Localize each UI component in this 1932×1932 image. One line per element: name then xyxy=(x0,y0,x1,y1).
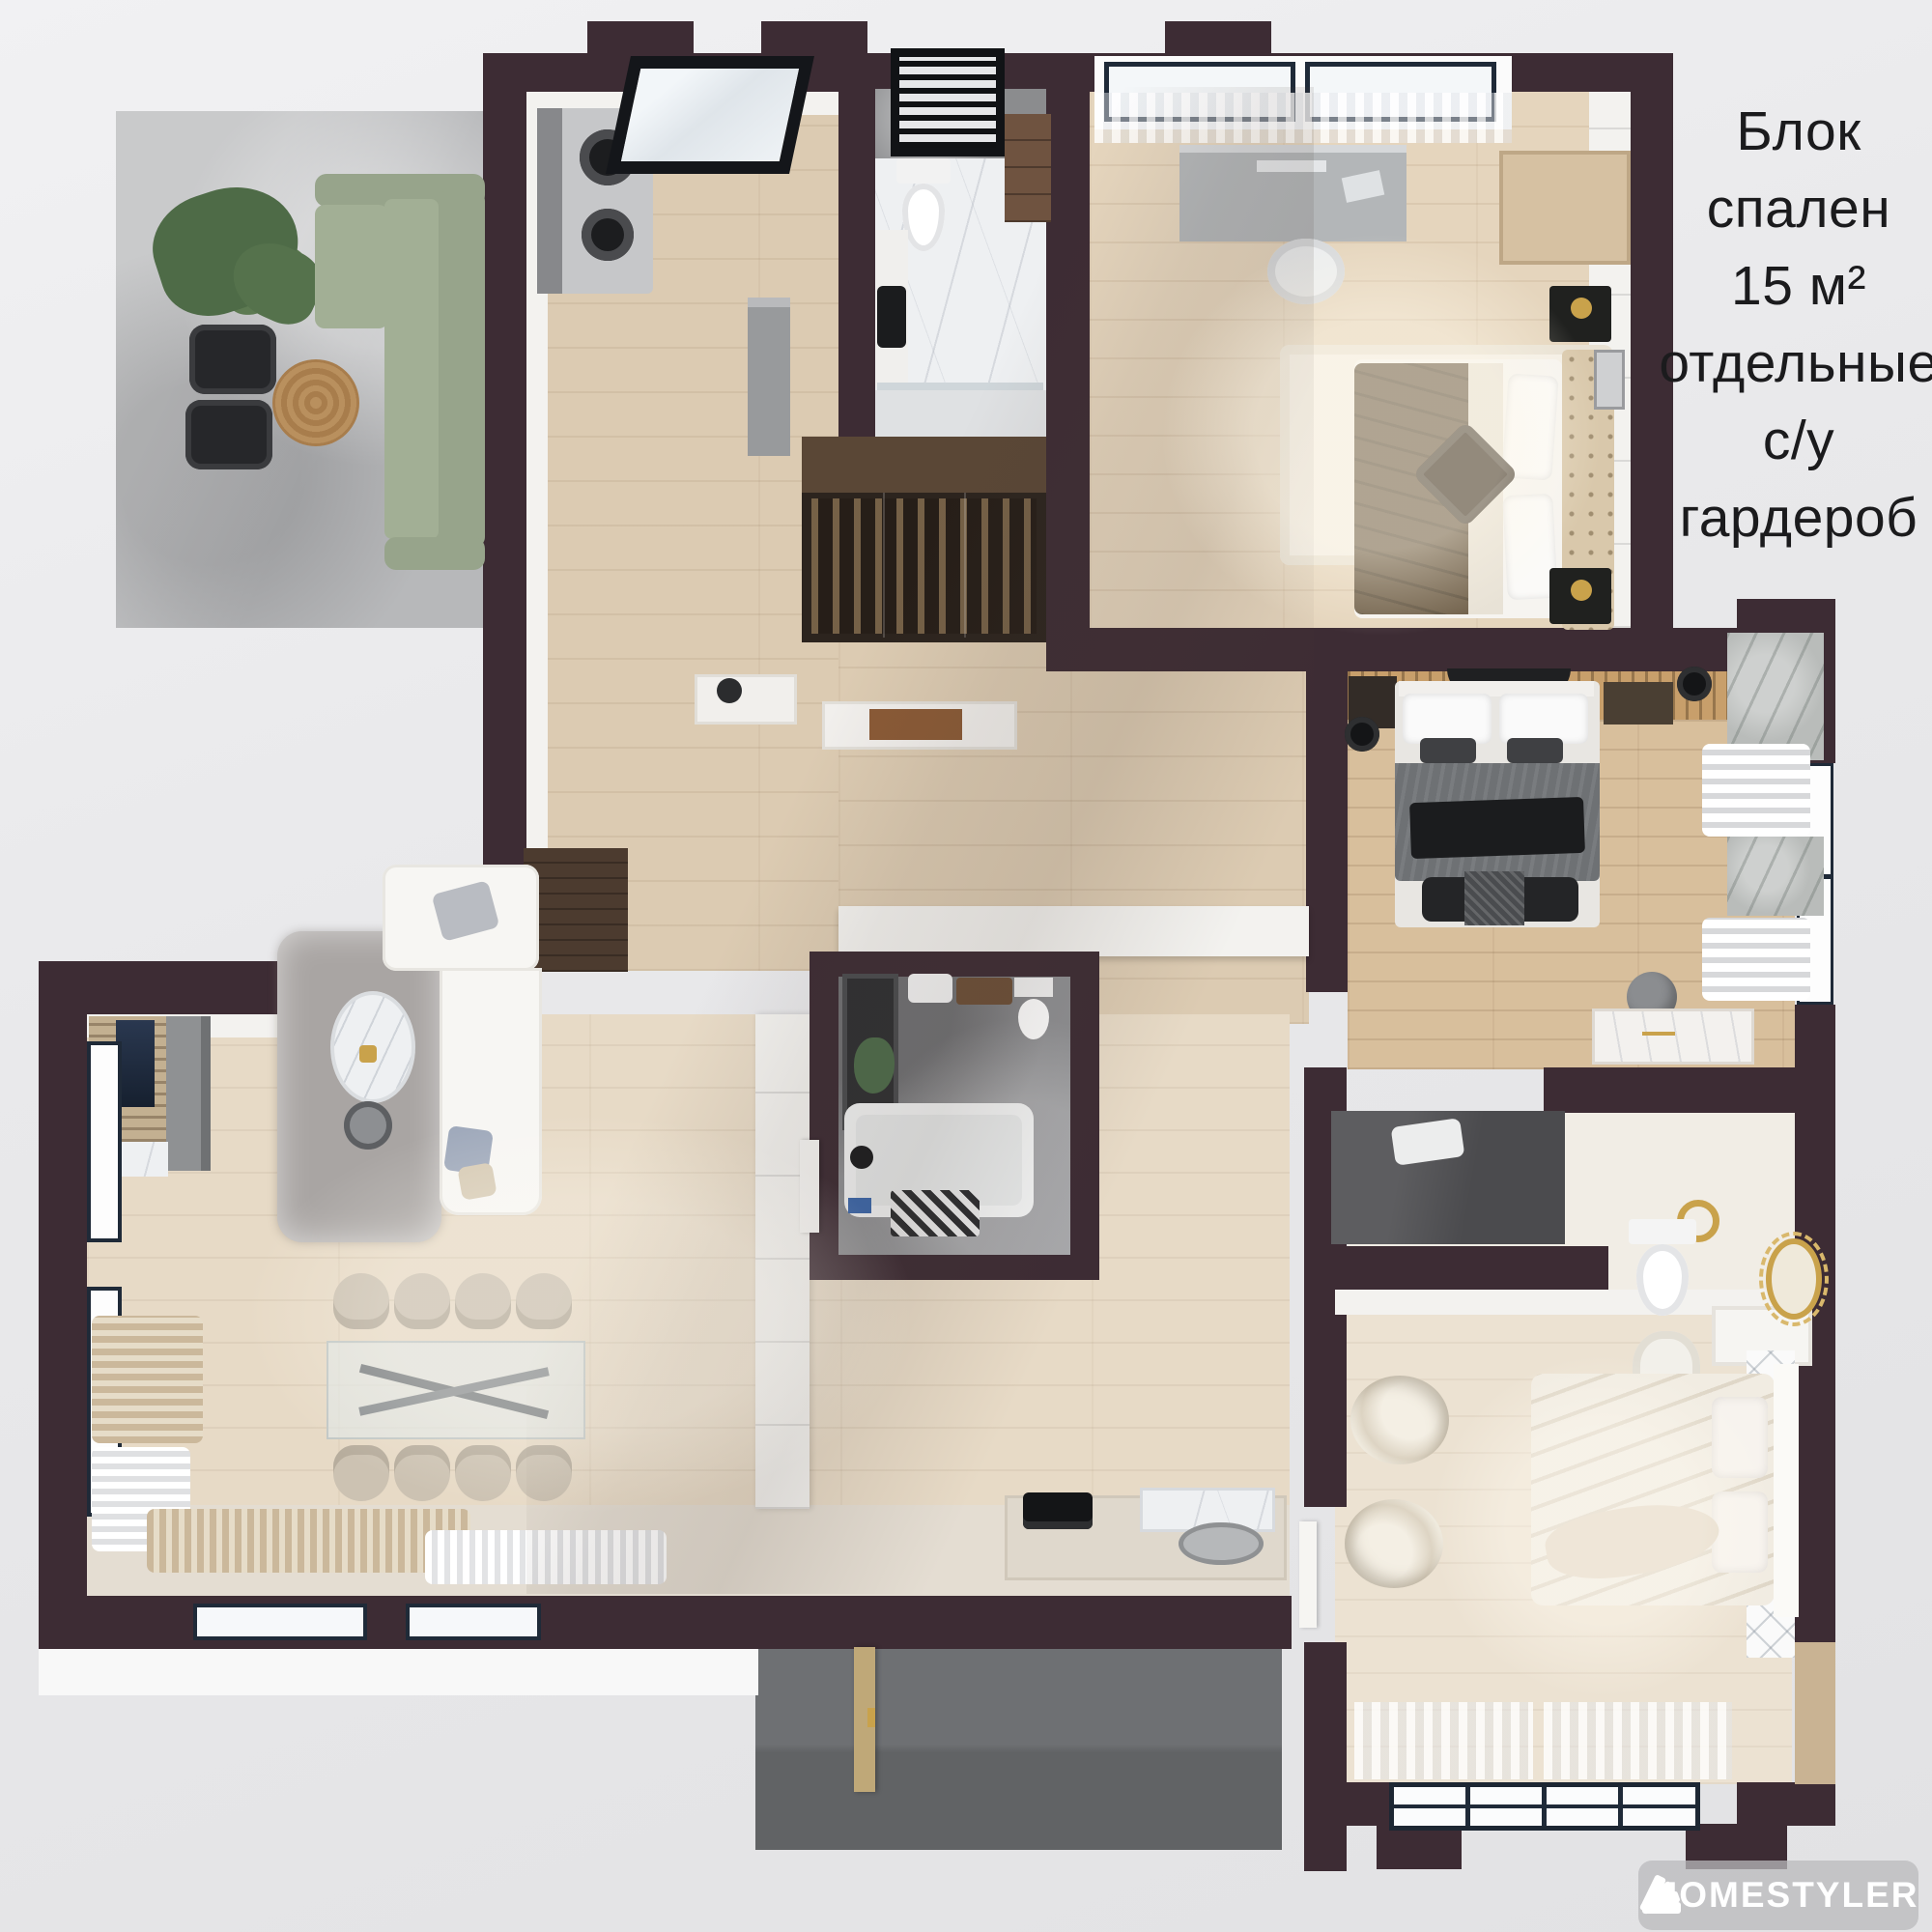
annotation-line: с/у xyxy=(1625,402,1932,479)
wall-bedroom3-top xyxy=(1335,1246,1608,1290)
shower-glass xyxy=(877,383,1043,390)
bathroom-top-slat-window xyxy=(891,48,1005,156)
terrace-armchair-2 xyxy=(185,400,272,469)
media-cabinet xyxy=(166,1016,211,1171)
wine-rack-icon xyxy=(1023,1492,1093,1529)
bedroom2-wardrobe-clothes-2 xyxy=(1702,918,1810,1001)
dining-chair xyxy=(455,1273,511,1329)
laundry-cabinet xyxy=(748,298,790,456)
annotation-line: спален xyxy=(1625,170,1932,247)
bedroom2-wardrobe-clothes-1 xyxy=(1702,744,1810,837)
bedroom2-wardrobe-stone-top xyxy=(1727,633,1824,760)
bedroom1-desk-chair xyxy=(1267,239,1345,304)
mirror-tray-icon xyxy=(1179,1522,1264,1565)
bathroom-top-sink xyxy=(877,286,906,348)
living-window-1 xyxy=(87,1041,122,1242)
annotation-line: отдельные xyxy=(1625,325,1932,402)
shelf-plant-icon xyxy=(854,1037,895,1094)
bathcenter-toilet-tank xyxy=(1014,978,1053,997)
bedroom3-swirl-chair-2 xyxy=(1345,1499,1443,1588)
dining-chair xyxy=(394,1273,450,1329)
terrace-sofa-seat xyxy=(384,199,439,539)
dryer-door-icon xyxy=(582,209,634,261)
bedroom2-nightstand-right xyxy=(1604,682,1673,724)
bathroom-top-cabinet xyxy=(1005,114,1051,222)
nook-toilet-tank xyxy=(1629,1219,1696,1244)
bottom-wall-window-2 xyxy=(406,1604,541,1640)
bathcenter-wall-right xyxy=(1070,952,1099,1280)
toilet-top-tank xyxy=(896,158,951,184)
wall-laundry-bath xyxy=(838,92,875,451)
bedroom3-window xyxy=(1389,1782,1700,1831)
bedroom3-window-transom xyxy=(1394,1804,1695,1808)
coffee-table-round xyxy=(344,1101,392,1150)
room-terrace-bottom xyxy=(755,1647,1282,1850)
bedroom1-desk xyxy=(1179,145,1406,241)
wall-bedroom3-bottom-right xyxy=(1737,1782,1835,1826)
homestyler-logo: HOMESTYLER xyxy=(1638,1861,1918,1930)
hall-console xyxy=(695,674,797,724)
bedroom2-pillow-2 xyxy=(1499,694,1588,744)
closet-hanging-clothes xyxy=(811,498,1037,634)
wall-corridor-left xyxy=(483,53,526,961)
bedroom2-dresser-handle xyxy=(1642,1032,1675,1036)
bottom-wall-window-1 xyxy=(193,1604,367,1640)
bedroom3-right-panel xyxy=(1795,1642,1835,1784)
kitchen-counter-band xyxy=(838,906,1309,956)
bathtub-faucet-icon xyxy=(850,1146,873,1169)
hall-console-lamp-icon xyxy=(717,678,742,703)
wall-bedroom3-bottom-left xyxy=(1335,1782,1391,1826)
bedroom3-pillow-1 xyxy=(1712,1397,1768,1478)
wall-top-pier-2 xyxy=(761,21,867,60)
bedroom3-door-leaf xyxy=(1299,1521,1317,1628)
bedroom1-leaning-art xyxy=(1594,350,1625,410)
bedroom2-pillow-small-1 xyxy=(1420,738,1476,763)
bedroom3-curtain-left xyxy=(1354,1702,1533,1779)
floor-plan-render: Блок спален 15 м² отдельные с/у гардероб… xyxy=(0,0,1932,1932)
bedroom3-curtain-right xyxy=(1544,1702,1732,1779)
hallway-cabinet-column xyxy=(755,1014,810,1509)
wall-top-pier-3 xyxy=(1165,21,1271,60)
entry-shoe-cabinet-niche xyxy=(869,709,962,740)
bedroom2-dresser xyxy=(1592,1009,1754,1065)
terrace-armchair-1 xyxy=(189,325,276,394)
sofa-pillow-beige xyxy=(457,1162,497,1201)
bedroom1-sheer-curtain xyxy=(1094,93,1512,143)
terrace-coffee-table xyxy=(272,359,359,446)
outer-bottom-face xyxy=(39,1649,758,1695)
bathcenter-door-leaf xyxy=(800,1140,819,1233)
bedroom2-pillow-1 xyxy=(1403,694,1492,744)
coffee-table-decor xyxy=(359,1045,377,1063)
annotation-line: 15 м² xyxy=(1625,247,1932,325)
wall-bottom-stub-1 xyxy=(1377,1824,1462,1869)
living-curtain-bottom-beige xyxy=(147,1509,470,1573)
bath-striped-mat xyxy=(891,1190,980,1236)
bedroom1-cabinet xyxy=(1499,151,1631,265)
entry-doormat xyxy=(524,848,628,972)
bedroom3-swirl-chair-1 xyxy=(1350,1376,1449,1464)
bedroom2-wardrobe-stone-mid xyxy=(1727,837,1824,916)
washer-side-panel xyxy=(537,108,562,294)
bedroom2-bench-throw xyxy=(1464,871,1524,925)
bathcenter-wall-bottom xyxy=(810,1255,1099,1280)
bedroom2-sconce-right-icon xyxy=(1677,667,1712,701)
dining-chair xyxy=(333,1273,389,1329)
annotation-note: Блок спален 15 м² отдельные с/у гардероб xyxy=(1625,93,1932,556)
bath-blue-card xyxy=(848,1198,871,1213)
wall-bedroom1-bottom xyxy=(1046,628,1797,671)
bedroom3-headboard xyxy=(1774,1364,1799,1617)
wall-bedroom1-left xyxy=(1046,92,1090,671)
walkin-closet xyxy=(802,437,1046,642)
dining-chair xyxy=(394,1445,450,1501)
watermark-brand-text: HOMESTYLER xyxy=(1652,1875,1919,1916)
wall-bedroom3-left-lower xyxy=(1304,1642,1347,1871)
bathcenter-basket xyxy=(956,978,1012,1005)
bedroom3-pillow-2 xyxy=(1712,1492,1768,1573)
terrace-sofa-chaise xyxy=(315,205,388,328)
bedroom2-pillow-small-2 xyxy=(1507,738,1563,763)
bedroom1-pillow-1 xyxy=(1501,373,1558,480)
living-curtain-left-beige xyxy=(92,1316,203,1443)
tv-screen-icon xyxy=(116,1020,155,1107)
nook-sunburst-mirror-icon xyxy=(1766,1238,1822,1320)
terrace-sofa-armrest-bottom xyxy=(384,537,485,570)
bedroom2-sconce-left-icon xyxy=(1345,717,1379,752)
terrace-door-handle xyxy=(867,1708,875,1727)
wall-top-pier-1 xyxy=(587,21,694,60)
bedroom2-throw xyxy=(1409,797,1585,859)
wall-left-outer xyxy=(39,961,87,1649)
dining-chair xyxy=(455,1445,511,1501)
dining-chair xyxy=(333,1445,389,1501)
bedroom1-lamp-1 xyxy=(1571,298,1592,319)
closet-glass-door-line2 xyxy=(964,493,966,638)
closet-top-shelf xyxy=(802,437,1046,493)
desk-laptop xyxy=(1342,170,1385,203)
wall-bedroom2-divider xyxy=(1306,671,1348,992)
bedroom1-lamp-2 xyxy=(1571,580,1592,601)
bathcenter-towels xyxy=(908,974,952,1003)
dining-chair xyxy=(516,1445,572,1501)
annotation-line: Блок xyxy=(1625,93,1932,170)
living-curtain-bottom-white xyxy=(425,1530,667,1584)
terrace-sofa-back xyxy=(435,191,485,547)
desk-monitor xyxy=(1257,160,1326,172)
wall-bedroom2-bottom xyxy=(1544,1067,1835,1113)
dining-table xyxy=(327,1341,585,1439)
laundry-skylight xyxy=(606,56,814,174)
closet-glass-door-line xyxy=(883,493,885,638)
dining-chair xyxy=(516,1273,572,1329)
annotation-line: гардероб xyxy=(1625,479,1932,556)
